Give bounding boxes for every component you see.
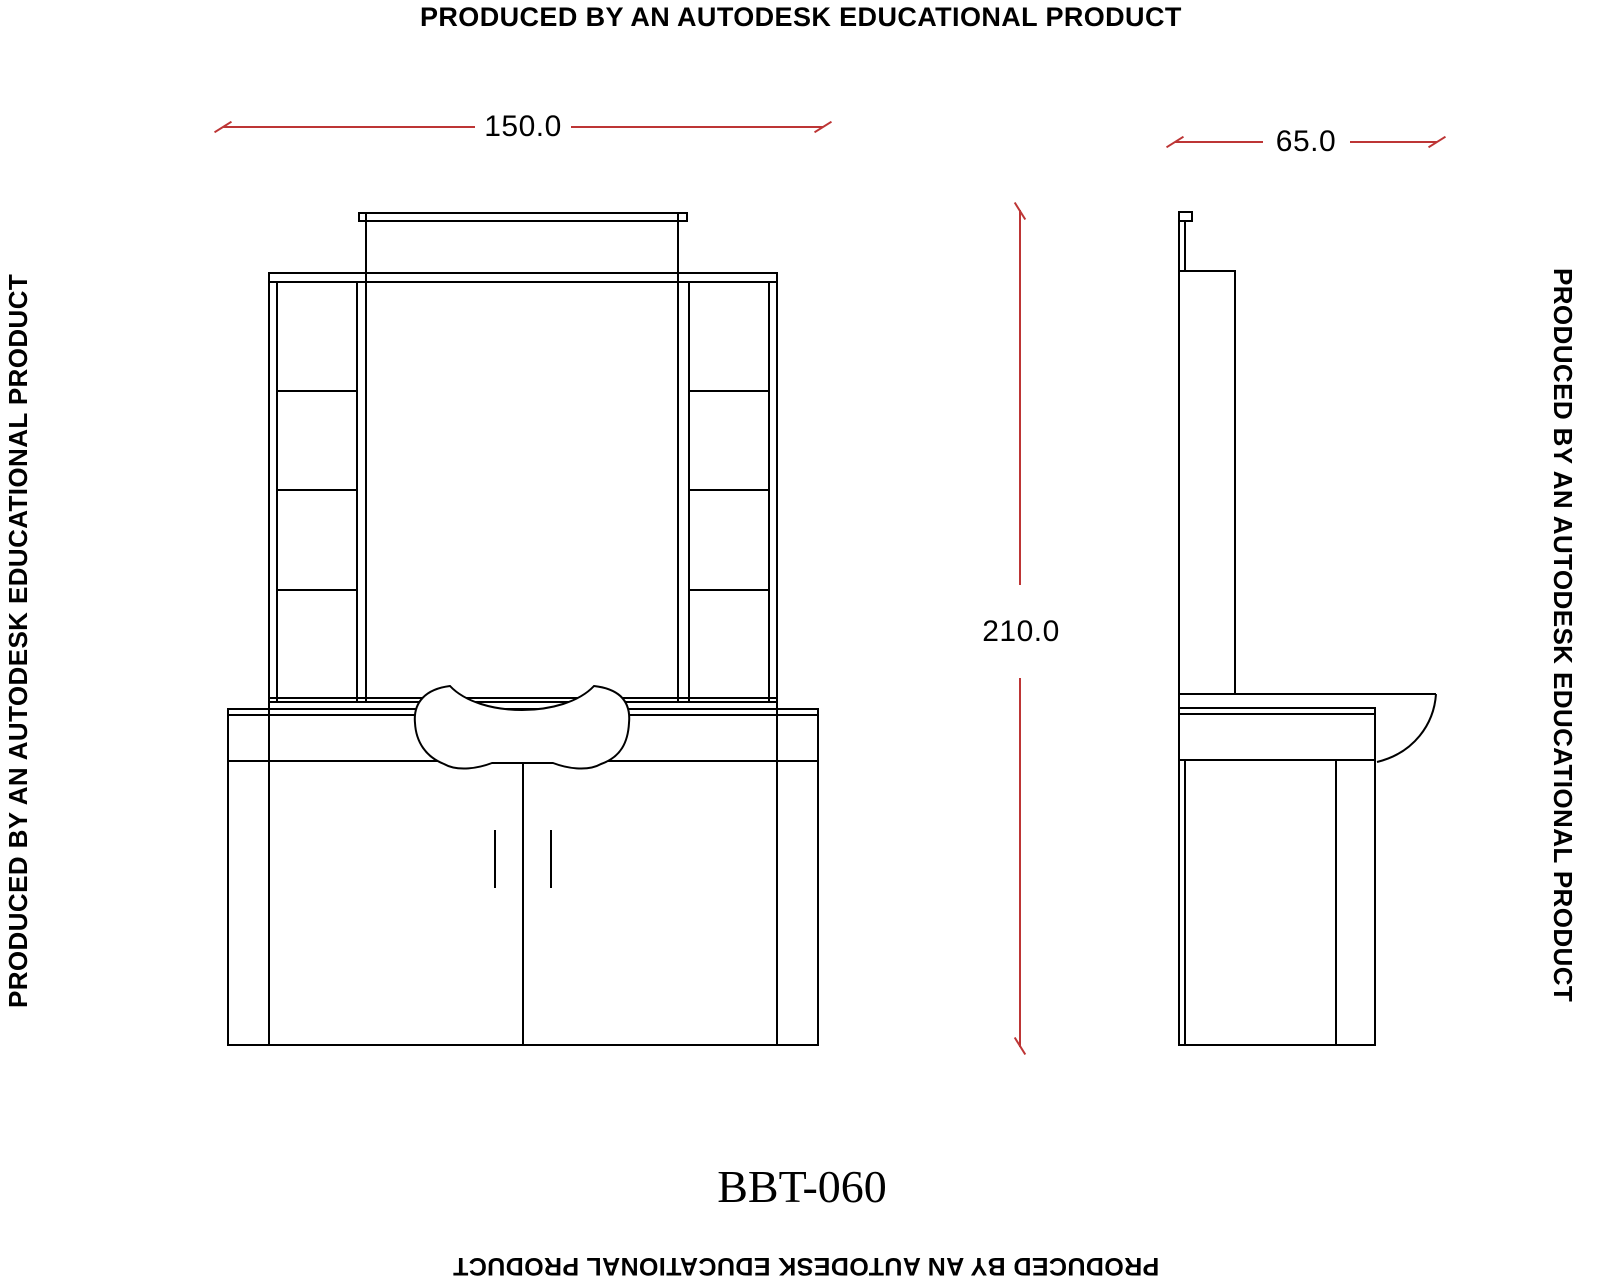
side-front-edge (1374, 707, 1376, 1046)
side-back-edge (1178, 211, 1180, 1046)
side-counter-curve-path (1377, 694, 1436, 762)
dim-65-label: 65.0 (1246, 127, 1366, 157)
side-counter-band (1178, 707, 1376, 715)
front-right-shelf-1 (690, 390, 768, 392)
front-left-tower-inner (276, 283, 278, 702)
front-right-tower-wall (688, 283, 690, 702)
drawing-title: BBT-060 (602, 1160, 1002, 1213)
side-mirror-strip (1184, 220, 1186, 270)
front-right-shelf-3 (690, 589, 768, 591)
front-left-shelf-3 (278, 589, 356, 591)
side-apron-line (1178, 759, 1376, 761)
front-left-shelf-2 (278, 489, 356, 491)
front-mirror-frame-right (677, 222, 679, 703)
front-left-stile (268, 272, 270, 1046)
front-top-rail (268, 272, 778, 283)
side-cabinet-bottom (1178, 1044, 1376, 1046)
front-door-handle-left (494, 830, 496, 888)
watermark-right: PRODUCED BY AN AUTODESK EDUCATIONAL PROD… (1547, 268, 1578, 1002)
front-door-split (522, 764, 524, 1044)
front-left-shelf-1 (278, 390, 356, 392)
watermark-left: PRODUCED BY AN AUTODESK EDUCATIONAL PROD… (3, 274, 34, 1008)
watermark-top: PRODUCED BY AN AUTODESK EDUCATIONAL PROD… (420, 2, 1182, 33)
dim-210-label: 210.0 (961, 617, 1081, 647)
dim-150-line-left (223, 126, 475, 128)
front-left-tower-wall (356, 283, 358, 702)
front-light-bar (358, 212, 688, 222)
dim-210-line-top (1019, 210, 1021, 585)
front-cabinet-right-edge (817, 708, 819, 1046)
dim-150-line-right (571, 126, 823, 128)
front-door-handle-right (550, 830, 552, 888)
front-right-tower-inner (768, 283, 770, 702)
watermark-bottom: PRODUCED BY AN AUTODESK EDUCATIONAL PROD… (450, 1251, 1162, 1280)
front-light-bar-tick-left (365, 212, 367, 222)
side-panel-top (1178, 270, 1236, 272)
front-mirror-frame-left (365, 222, 367, 703)
side-stile-back (1184, 761, 1186, 1046)
front-cabinet-bottom (227, 1044, 819, 1046)
dim-150-label: 150.0 (463, 112, 583, 142)
side-stile-front (1335, 761, 1337, 1046)
front-right-stile (776, 272, 778, 1046)
front-light-bar-tick-right (677, 212, 679, 222)
front-basin-outline (415, 686, 629, 769)
side-panel-front (1234, 270, 1236, 695)
cad-drawing-sheet: PRODUCED BY AN AUTODESK EDUCATIONAL PROD… (0, 0, 1600, 1280)
front-cabinet-left-edge (227, 708, 229, 1046)
front-right-shelf-2 (690, 489, 768, 491)
front-basin (400, 670, 650, 785)
dim-210-line-bottom (1019, 678, 1021, 1047)
